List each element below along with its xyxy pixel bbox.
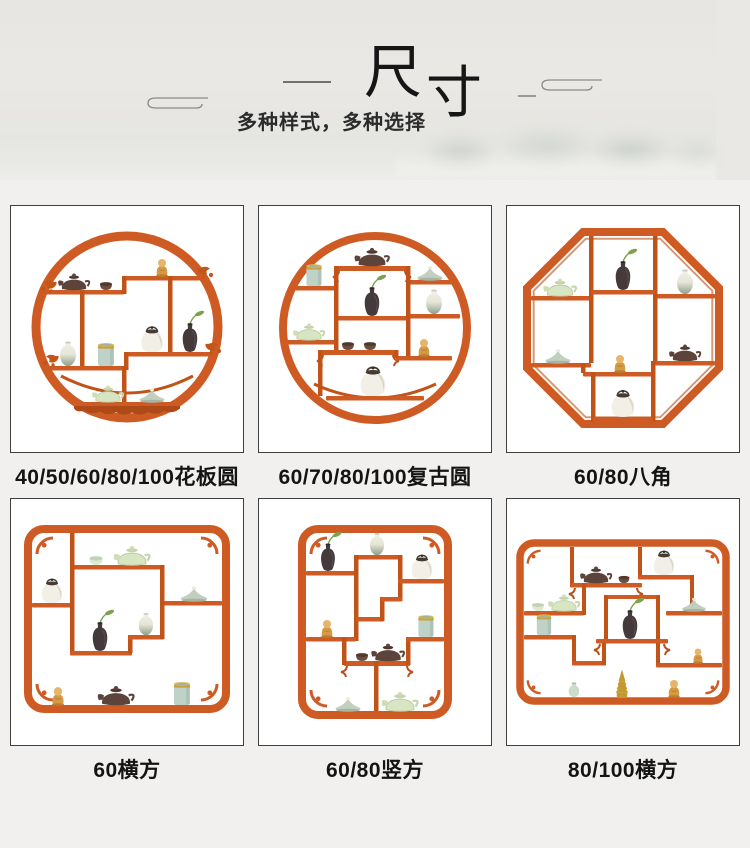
product-cell-horizontal-rectangle: 80/100横方 [506, 498, 740, 791]
lid-icon [140, 388, 165, 403]
title-char-2: 寸 [426, 66, 482, 122]
teacup-icon [364, 342, 376, 350]
corner-bracket-icon [311, 690, 327, 706]
teapot-icon [293, 324, 324, 341]
header-banner: 尺 寸 多种样式，多种选择 [0, 0, 750, 180]
product-caption: 60/80竖方 [258, 746, 492, 791]
cloud-scroll-icon [510, 76, 608, 102]
product-caption: 40/50/60/80/100花板圆 [10, 453, 244, 498]
teacup-icon [100, 282, 112, 290]
teapot-icon [580, 567, 611, 584]
vase-icon [677, 270, 693, 295]
lid-icon [546, 349, 571, 364]
teapot-icon [355, 248, 389, 266]
figurine-icon [614, 355, 626, 373]
product-photo-octagon [506, 205, 740, 453]
display-items [42, 546, 207, 706]
teapot-icon [114, 546, 150, 565]
corner-bracket-icon [37, 684, 53, 700]
teacup-icon [619, 576, 630, 583]
tea-caddy-icon [174, 682, 190, 705]
teapot-icon [98, 686, 134, 705]
lid-icon [682, 598, 706, 612]
jar-icon [412, 555, 432, 579]
teacup-icon [532, 603, 544, 611]
pagoda-icon [616, 669, 628, 697]
display-items [543, 248, 700, 417]
shelf-illustration-octagon [507, 206, 739, 452]
product-caption: 60横方 [10, 746, 244, 791]
product-photo-vintage-circle [258, 205, 492, 453]
corner-bracket-icon [201, 684, 217, 700]
tea-caddy-icon [98, 343, 114, 366]
jar-icon [361, 366, 386, 396]
teacup-icon [342, 342, 354, 350]
vase-icon [60, 342, 76, 367]
tea-caddy-icon [306, 264, 321, 286]
corner-bracket-icon [528, 680, 541, 693]
vase-icon [139, 613, 153, 635]
teapot-icon [58, 274, 89, 291]
product-photo-horizontal-rectangle [506, 498, 740, 746]
lid-icon [336, 697, 361, 712]
corner-bracket-icon [201, 538, 217, 554]
product-photo-horizontal-square [10, 498, 244, 746]
corner-bracket-icon [423, 538, 439, 554]
product-cell-carved-circle: 40/50/60/80/100花板圆 [10, 205, 244, 498]
small-vase-icon [569, 682, 580, 697]
fog-decoration [395, 150, 716, 178]
jar-icon [141, 326, 162, 352]
jar-icon [42, 579, 62, 603]
corner-bracket-icon [528, 551, 541, 564]
display-items [532, 551, 706, 698]
tea-caddy-icon [537, 614, 551, 635]
figurine-icon [52, 687, 64, 706]
teapot-icon [548, 595, 579, 612]
leaf-vase-icon [616, 248, 638, 290]
teapot-icon [543, 279, 576, 297]
product-cell-horizontal-square: 60横方 [10, 498, 244, 791]
product-cell-octagon: 60/80八角 [506, 205, 740, 498]
shelf-illustration-vertical-square [259, 499, 491, 745]
vase-icon [370, 533, 384, 555]
vase-icon [426, 290, 442, 315]
title-char-1: 尺 [364, 44, 422, 102]
teapot-icon [669, 345, 700, 362]
shelf-illustration-horizontal-square [11, 499, 243, 745]
product-photo-vertical-square [258, 498, 492, 746]
page-subtitle: 多种样式，多种选择 [237, 106, 426, 135]
figurine-icon [418, 339, 430, 357]
shelf-illustration-vintage-circle [259, 206, 491, 452]
lid-icon [418, 266, 443, 281]
figurine-icon [668, 680, 680, 698]
teapot-icon [382, 692, 418, 711]
tea-caddy-icon [418, 615, 433, 637]
product-cell-vertical-square: 60/80竖方 [258, 498, 492, 791]
leaf-vase-icon [183, 310, 205, 352]
teacup-icon [89, 556, 102, 565]
leaf-vase-icon [365, 274, 387, 316]
corner-bracket-icon [705, 551, 718, 564]
product-cell-vintage-circle: 60/70/80/100复古圆 [258, 205, 492, 498]
jar-icon [654, 551, 674, 575]
lid-icon [181, 587, 207, 602]
product-caption: 60/70/80/100复古圆 [258, 453, 492, 498]
divider-line-icon [283, 81, 331, 83]
jar-icon [612, 390, 635, 417]
teacup-icon [356, 653, 368, 661]
corner-bracket-icon [705, 680, 718, 693]
product-caption: 60/80八角 [506, 453, 740, 498]
product-caption: 80/100横方 [506, 746, 740, 791]
product-photo-carved-circle [10, 205, 244, 453]
figurine-icon [693, 649, 703, 664]
product-grid: 40/50/60/80/100花板圆 [0, 180, 750, 791]
leaf-vase-icon [623, 597, 645, 639]
shelf-illustration-horizontal-rectangle [507, 499, 739, 745]
shelf-illustration-carved-circle [11, 206, 243, 452]
corner-bracket-icon [37, 538, 53, 554]
figurine-icon [156, 259, 168, 277]
leaf-vase-icon [93, 609, 115, 651]
teapot-icon [371, 644, 404, 662]
cloud-scroll-icon [132, 94, 216, 116]
corner-bracket-icon [423, 690, 439, 706]
figurine-icon [321, 620, 333, 638]
